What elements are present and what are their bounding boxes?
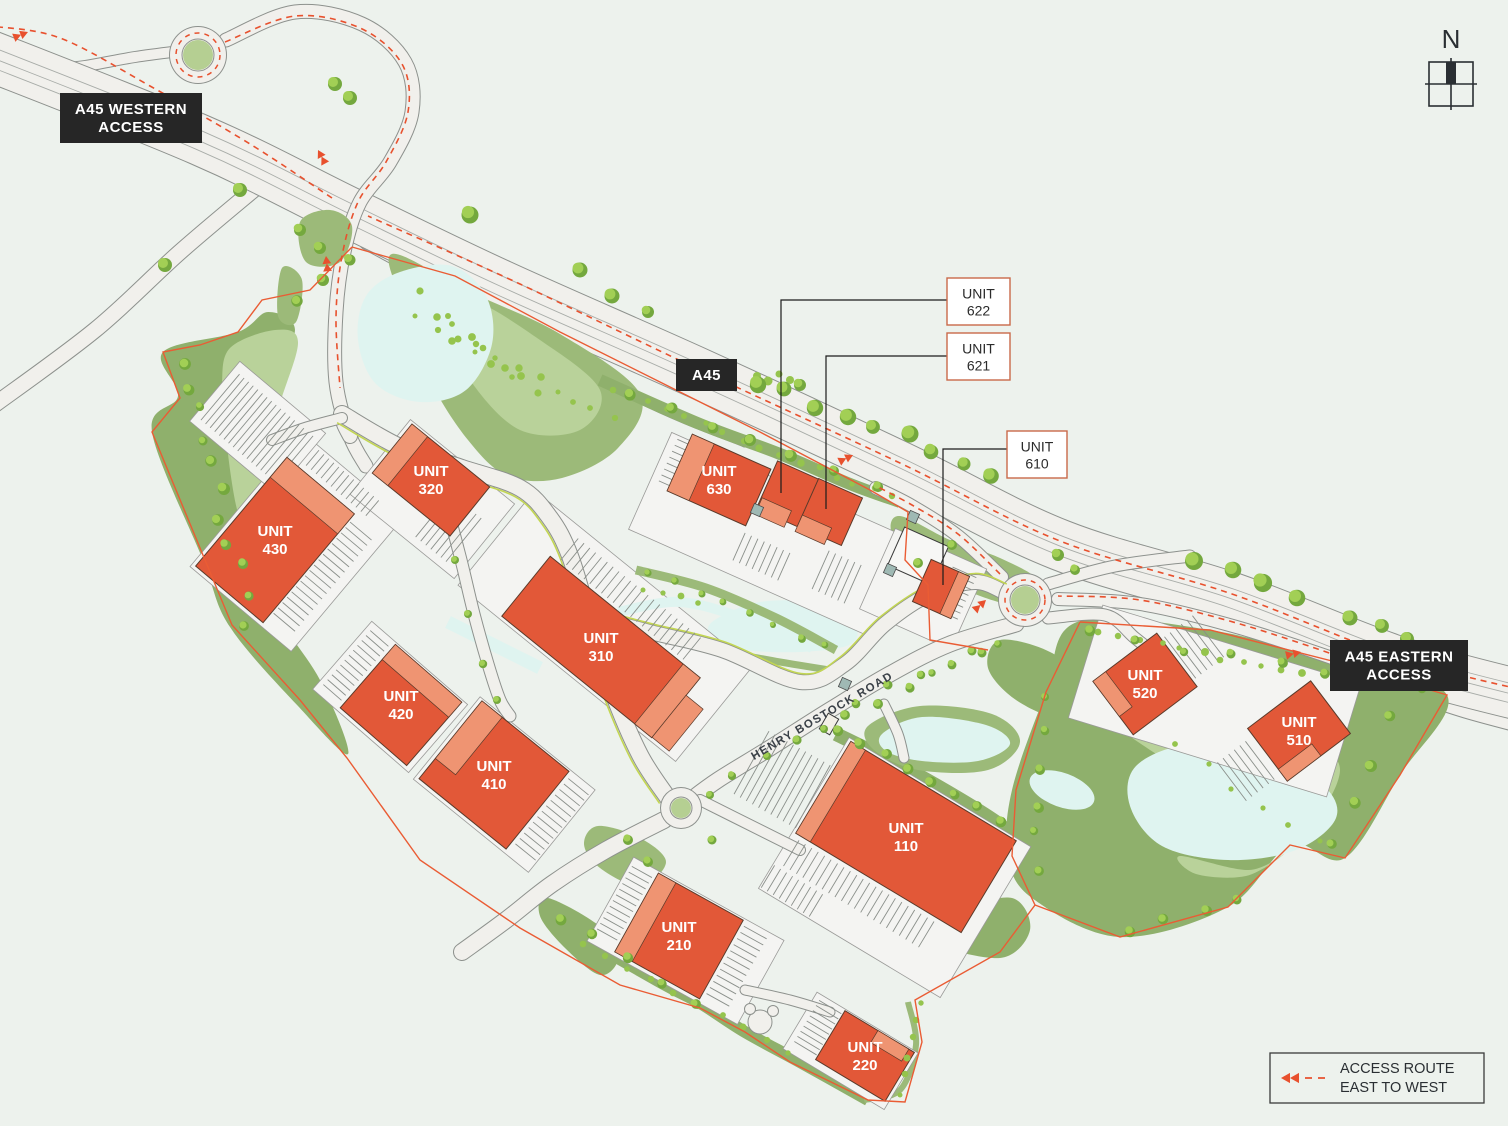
svg-text:UNIT320: UNIT320: [414, 463, 449, 498]
svg-text:622: 622: [967, 303, 991, 319]
svg-text:N: N: [1442, 24, 1461, 54]
svg-text:UNIT510: UNIT510: [1282, 714, 1317, 749]
svg-text:UNIT630: UNIT630: [702, 463, 737, 498]
svg-text:UNIT: UNIT: [962, 286, 995, 302]
svg-text:UNIT210: UNIT210: [662, 919, 697, 954]
svg-text:UNIT220: UNIT220: [848, 1039, 883, 1074]
svg-text:UNIT: UNIT: [1021, 439, 1054, 455]
svg-text:UNIT: UNIT: [962, 341, 995, 357]
svg-text:UNIT420: UNIT420: [384, 688, 419, 723]
svg-text:UNIT410: UNIT410: [477, 758, 512, 793]
svg-text:UNIT310: UNIT310: [584, 630, 619, 665]
svg-text:A45: A45: [692, 367, 721, 384]
svg-text:UNIT430: UNIT430: [258, 523, 293, 558]
svg-text:610: 610: [1025, 456, 1049, 472]
svg-text:ACCESS ROUTE: ACCESS ROUTE: [1340, 1061, 1455, 1077]
svg-text:EAST TO WEST: EAST TO WEST: [1340, 1080, 1447, 1096]
svg-text:UNIT520: UNIT520: [1128, 667, 1163, 702]
svg-text:621: 621: [967, 358, 991, 374]
